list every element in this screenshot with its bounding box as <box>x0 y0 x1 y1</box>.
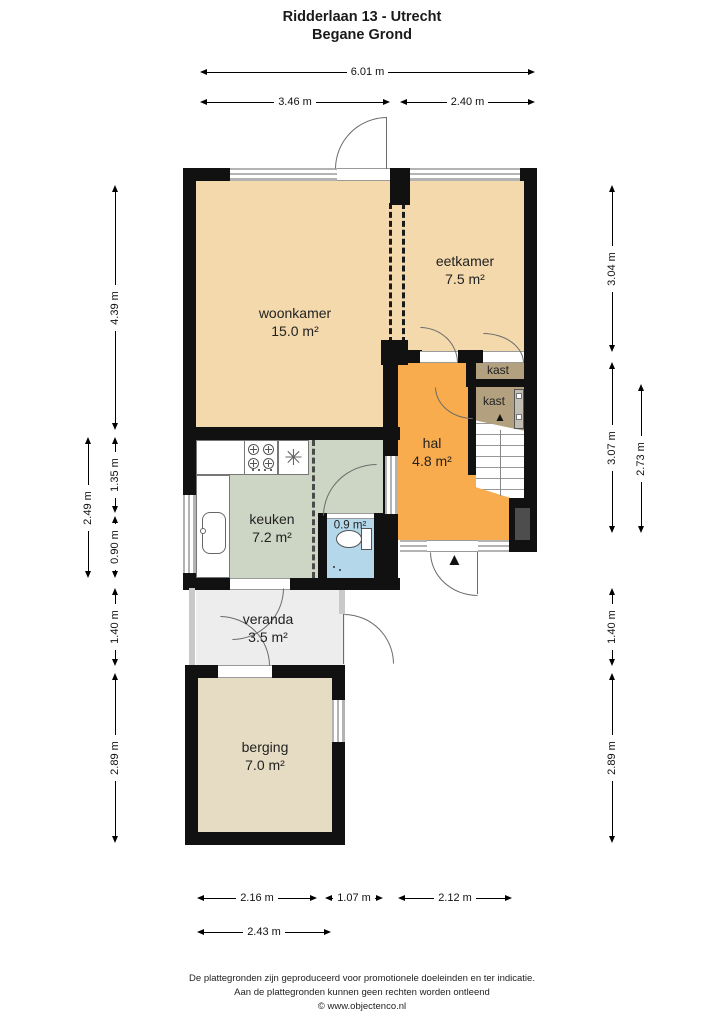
dimension-left-keuken-lower: 0.90 m <box>108 516 122 578</box>
wall-segment <box>290 578 400 590</box>
dimension-bottom-middle: 1.07 m <box>325 892 383 904</box>
wall-segment <box>183 168 196 440</box>
dimension-top-left: 3.46 m <box>200 96 390 108</box>
page-title-floor: Begane Grond <box>0 26 724 44</box>
footer-disclaimer: De plattegronden zijn geproduceerd voor … <box>0 972 724 1013</box>
window <box>478 540 509 552</box>
floor-drain-icon <box>333 566 335 568</box>
door-leaf <box>343 614 344 664</box>
veranda-post <box>330 578 345 590</box>
window <box>183 495 196 573</box>
door-swing-arc <box>344 614 394 664</box>
wall-segment <box>458 350 483 363</box>
dimension-bottom-berging-outer: 2.43 m <box>197 926 331 938</box>
dimension-left-keuken-total: 2.49 m <box>81 437 95 578</box>
boiler-icon <box>514 389 524 429</box>
wall-segment <box>472 379 524 387</box>
room-label-kast1: kast <box>487 363 509 379</box>
floor-drain-icon <box>339 569 341 571</box>
wall-segment <box>318 513 327 578</box>
stairs-up-arrow-icon: ▲ <box>494 411 506 423</box>
wall-segment <box>183 427 400 440</box>
woonkamer-eetkamer-dashed-divider <box>389 203 405 343</box>
dimension-left-berging: 2.89 m <box>108 673 122 843</box>
room-label-woonkamer: woonkamer15.0 m² <box>259 304 331 340</box>
door-opening <box>337 168 390 181</box>
window <box>230 168 337 181</box>
door-swing-arc <box>335 117 387 169</box>
wall-segment <box>390 168 410 205</box>
dimension-left-woonkamer: 4.39 m <box>108 185 122 430</box>
dimension-right-berging: 2.89 m <box>605 673 619 843</box>
door-leaf <box>386 117 387 169</box>
dimension-bottom-berging-inner: 2.16 m <box>197 892 317 904</box>
dimension-left-keuken-upper: 1.35 m <box>108 437 122 513</box>
window <box>385 456 398 514</box>
sink-tap-icon <box>200 528 206 534</box>
window <box>332 700 345 742</box>
room-label-keuken: keuken7.2 m² <box>249 510 294 546</box>
floorplan-page: Ridderlaan 13 - Utrecht Begane Grond ▲ <box>0 0 724 1024</box>
door-opening <box>218 665 272 678</box>
window <box>410 168 520 181</box>
staircase-center-line <box>500 430 501 496</box>
dimension-left-veranda: 1.40 m <box>108 588 122 666</box>
room-label-veranda: veranda3.5 m² <box>243 610 294 646</box>
door-leaf <box>477 552 478 594</box>
window <box>400 540 427 552</box>
dimension-right-hal-inner: 2.73 m <box>634 384 648 533</box>
stove-icon <box>244 440 278 475</box>
dimension-top-right: 2.40 m <box>400 96 535 108</box>
room-label-berging: berging7.0 m² <box>242 738 289 774</box>
room-label-kast2: kast <box>483 394 505 410</box>
wall-segment <box>524 168 537 552</box>
sink-icon <box>202 512 226 554</box>
footer-copyright: © www.objectenco.nl <box>0 1000 724 1014</box>
footer-line-2: Aan de plattegronden kunnen geen rechten… <box>0 986 724 1000</box>
veranda-wall <box>189 588 195 665</box>
dimension-right-eetkamer: 3.04 m <box>605 185 619 352</box>
page-title-address: Ridderlaan 13 - Utrecht <box>0 8 724 26</box>
dimension-bottom-hal: 2.12 m <box>398 892 512 904</box>
keuken-dashed-divider <box>312 440 315 578</box>
entrance-arrow-icon: ▲ <box>446 551 463 568</box>
room-label-eetkamer: eetkamer7.5 m² <box>436 252 494 288</box>
footer-line-1: De plattegronden zijn geproduceerd voor … <box>0 972 724 986</box>
wall-segment <box>183 440 196 495</box>
dimension-right-hal-total: 3.07 m <box>605 362 619 533</box>
room-label-toilet: 0.9 m² <box>334 519 367 534</box>
veranda-wall <box>339 590 345 614</box>
wall-segment <box>374 513 398 578</box>
room-label-hal: hal4.8 m² <box>412 434 452 470</box>
dimension-right-veranda: 1.40 m <box>605 588 619 666</box>
dimension-top-total: 6.01 m <box>200 66 535 78</box>
meter-cupboard-door <box>515 508 530 540</box>
extractor-icon: ✳ <box>278 440 309 475</box>
